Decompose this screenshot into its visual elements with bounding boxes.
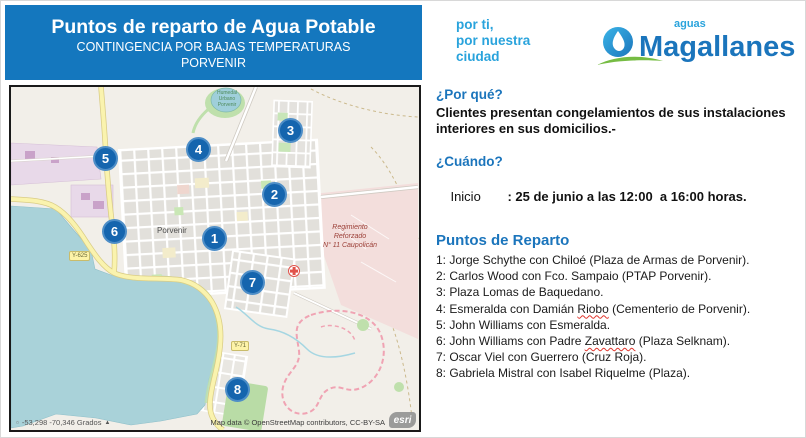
points-list: 1: Jorge Schythe con Chiloé (Plaza de Ar…	[436, 252, 806, 382]
logo-name-text: Magallanes	[639, 31, 795, 63]
why-body: Clientes presentan congelamientos de sus…	[436, 105, 806, 136]
map-marker-7: 7	[240, 270, 265, 295]
when-value: : 25 de junio a las 12:00 a 16:00 horas.	[507, 189, 746, 204]
map-marker-3: 3	[278, 118, 303, 143]
page-title: Puntos de reparto de Agua Potable	[5, 15, 422, 39]
header-banner: Puntos de reparto de Agua Potable CONTIN…	[5, 5, 422, 80]
why-heading: ¿Por qué?	[436, 87, 503, 102]
points-heading: Puntos de Reparto	[436, 232, 569, 249]
point-item: 2: Carlos Wood con Fco. Sampaio (PTAP Po…	[436, 268, 806, 284]
coordinates-readout: ▫ -53,298 -70,346 Grados ▲	[16, 418, 110, 427]
page-subtitle-2: PORVENIR	[5, 55, 422, 71]
map-marker-4: 4	[186, 137, 211, 162]
map: Porvenir Regimiento Reforzado N° 11 Caup…	[9, 85, 421, 432]
point-item: 6: John Williams con Padre Zavattaro (Pl…	[436, 333, 806, 349]
point-item: 5: John Williams con Esmeralda.	[436, 317, 806, 333]
brand-slogan: por ti, por nuestra ciudad	[456, 17, 530, 65]
coordinates-value: -53,298 -70,346 Grados	[22, 418, 102, 427]
map-markers: 12345678	[11, 87, 419, 430]
point-item: 7: Oscar Viel con Guerrero (Cruz Roja).	[436, 349, 806, 365]
when-heading: ¿Cuándo?	[436, 154, 503, 169]
page-subtitle-1: CONTINGENCIA POR BAJAS TEMPERATURAS	[5, 39, 422, 55]
slogan-line-2: por nuestra	[456, 33, 530, 49]
slogan-line-3: ciudad	[456, 49, 530, 65]
point-item: 1: Jorge Schythe con Chiloé (Plaza de Ar…	[436, 252, 806, 268]
map-marker-2: 2	[262, 182, 287, 207]
water-drop-icon: aguas Magallanes	[597, 11, 803, 71]
map-marker-8: 8	[225, 377, 250, 402]
when-label: Inicio	[450, 189, 507, 204]
coordinates-icon: ▫	[16, 418, 19, 427]
map-marker-6: 6	[102, 219, 127, 244]
why-body-line-1: Clientes presentan congelamientos de sus…	[436, 105, 806, 121]
why-body-line-2: interiores en sus domicilios.-	[436, 121, 806, 137]
point-item: 4: Esmeralda con Damián Riobo (Cementeri…	[436, 301, 806, 317]
when-line: Inicio: 25 de junio a las 12:00 a 16:00 …	[436, 174, 747, 219]
point-item: 3: Plaza Lomas de Baquedano.	[436, 284, 806, 300]
flyer-slide: Puntos de reparto de Agua Potable CONTIN…	[0, 0, 806, 438]
map-marker-5: 5	[93, 146, 118, 171]
map-marker-1: 1	[202, 226, 227, 251]
company-logo: aguas Magallanes	[597, 11, 803, 71]
point-item: 8: Gabriela Mistral con Isabel Riquelme …	[436, 365, 806, 381]
slogan-line-1: por ti,	[456, 17, 530, 33]
coordinates-arrow-icon: ▲	[104, 420, 110, 426]
logo-small-text: aguas	[674, 18, 706, 30]
map-attribution: Map data © OpenStreetMap contributors, C…	[211, 418, 386, 427]
esri-logo: esri	[389, 412, 416, 428]
